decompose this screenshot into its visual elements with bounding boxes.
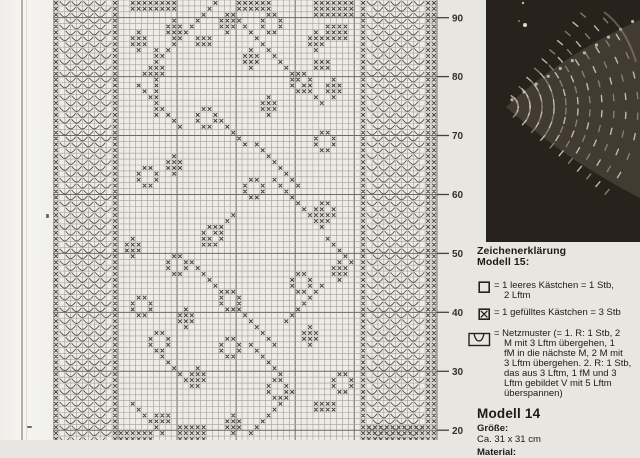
model14-size-label: Größe:	[477, 424, 637, 434]
row-number-label: 50	[452, 249, 464, 260]
side-panel: Zeichenerklärung Modell 15: = 1 leeres K…	[477, 246, 637, 458]
page-crease-line-faint	[26, 0, 27, 440]
legend-item-text: = Netzmuster (= 1. R: 1 Stb, 2 M mit 3 L…	[494, 329, 637, 399]
x-square-icon	[478, 308, 491, 326]
model14-size-value: Ca. 31 x 31 cm	[477, 435, 637, 445]
net-v-icon	[468, 330, 491, 352]
empty-square-icon	[478, 281, 491, 299]
legend-item-netzmuster: = Netzmuster (= 1. R: 1 Stb, 2 M mit 3 L…	[477, 329, 637, 399]
photo-svg	[486, 0, 640, 242]
model14-material-label: Material:	[477, 448, 637, 458]
filet-chart-svg: 9080706050403020	[53, 0, 473, 440]
model14-title: Modell 14	[477, 406, 637, 421]
row-number-label: 60	[452, 190, 464, 201]
legend-item-text: = 1 gefülltes Kästchen = 3 Stb	[494, 308, 637, 318]
row-number-label: 70	[452, 131, 464, 142]
filet-crochet-chart: 9080706050403020	[53, 0, 473, 440]
page-crease-line	[21, 0, 23, 440]
legend-item-filled-square: = 1 gefülltes Kästchen = 3 Stb	[477, 308, 637, 318]
row-number-label: 40	[452, 308, 464, 319]
row-number-label: 30	[452, 367, 464, 378]
magazine-page: { "page": { "bg": "#e8e6e1" }, "chart": …	[0, 0, 640, 440]
page-margin	[0, 0, 53, 440]
print-speck	[27, 426, 32, 428]
legend-item-empty-square: = 1 leeres Kästchen = 1 Stb, 2 Lftm	[477, 281, 637, 301]
legend-title-line2: Modell 15:	[477, 257, 637, 268]
print-speck	[46, 214, 49, 218]
legend-item-text: = 1 leeres Kästchen = 1 Stb, 2 Lftm	[494, 281, 637, 301]
row-number-label: 20	[452, 426, 464, 437]
row-number-label: 90	[452, 13, 464, 24]
row-number-label: 80	[452, 72, 464, 83]
photo-crochet-lace	[486, 0, 640, 242]
